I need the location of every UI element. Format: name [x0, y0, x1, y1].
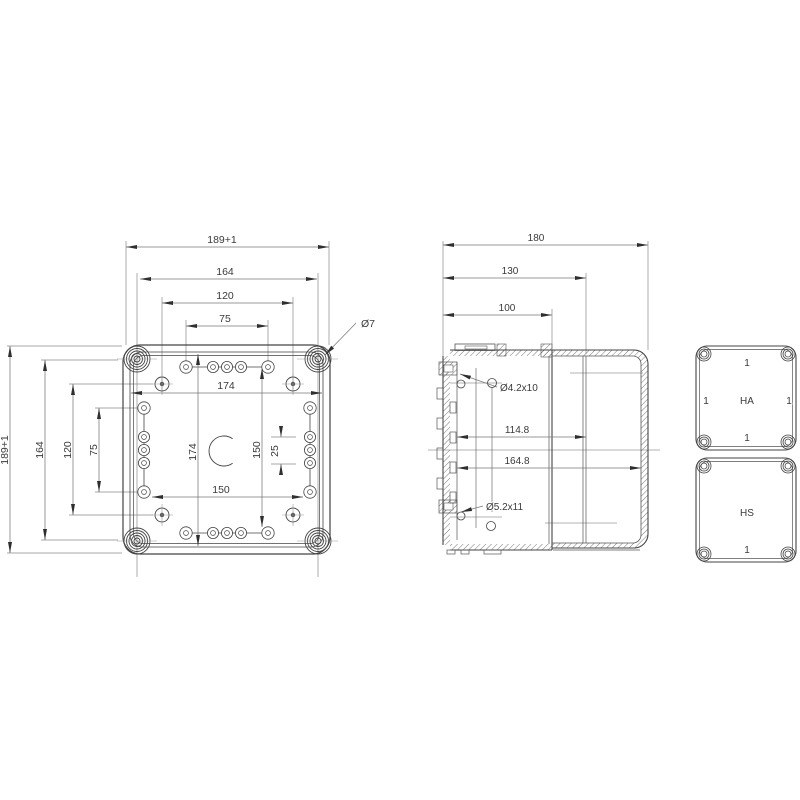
dim-depth-to-rim: 130	[502, 266, 519, 277]
dim-depth-overall: 180	[528, 233, 545, 244]
plate-fixing-holes	[151, 373, 304, 526]
dim-width-bosses: 164	[216, 266, 234, 278]
section-view: 180 130 100 114.8 164.8 Ø4.2x10 Ø5.2x11	[428, 233, 660, 554]
front-view: 189+1 164 120 75 189+1 164 120 75 174 17…	[0, 234, 375, 577]
dim-inner-base-depth: 114.8	[505, 425, 530, 436]
dim-right-span: 150	[251, 441, 263, 459]
enclosure-outer-edge	[123, 345, 330, 554]
hole-label-bottom: Ø5.2x11	[486, 502, 523, 513]
dim-inner-width: 174	[217, 380, 235, 392]
dim-inner-height: 174	[187, 443, 199, 461]
hs-title: HS	[740, 508, 754, 519]
dim-height-slots: 75	[88, 444, 100, 456]
dim-depth-to-base-edge: 100	[499, 303, 516, 314]
ha-title: HA	[740, 396, 754, 407]
lid-view-ha: 1 1 1 HA 1	[696, 346, 796, 450]
section-centerlines	[428, 373, 660, 523]
hole-label-top: Ø4.2x10	[500, 383, 538, 394]
technical-drawing: 189+1 164 120 75 189+1 164 120 75 174 17…	[0, 0, 800, 800]
ha-screw-right: 1	[786, 396, 792, 407]
base-feet	[447, 550, 501, 554]
front-dimension-lines	[10, 247, 356, 553]
lid-views: 1 1 1 HA 1 HS 1	[696, 346, 796, 562]
front-extension-lines	[7, 241, 329, 577]
center-knockout-arc	[209, 436, 233, 466]
ha-screw-top: 1	[744, 358, 750, 369]
hs-screw-bottom: 1	[744, 545, 750, 556]
ha-screw-bottom: 1	[744, 433, 750, 444]
ha-screw-left: 1	[703, 396, 709, 407]
dim-bottom-span: 150	[212, 484, 230, 496]
dim-height-bosses: 164	[34, 441, 46, 459]
dim-height-outer: 189+1	[0, 435, 11, 465]
section-dimension-lines	[443, 245, 648, 512]
corner-hole-label: Ø7	[361, 318, 375, 330]
dim-hole-pitch: 25	[269, 445, 281, 457]
dim-inner-total-depth: 164.8	[504, 456, 529, 467]
drawing-page: 189+1 164 120 75 189+1 164 120 75 174 17…	[0, 0, 800, 800]
dim-height-plate: 120	[62, 441, 74, 459]
dim-width-slots: 75	[219, 313, 231, 325]
dim-width-plate: 120	[216, 290, 234, 302]
lid-view-hs: HS 1	[696, 458, 796, 562]
dim-width-outer: 189+1	[207, 234, 237, 246]
section-extension-lines	[443, 241, 648, 358]
section-base	[437, 344, 552, 554]
